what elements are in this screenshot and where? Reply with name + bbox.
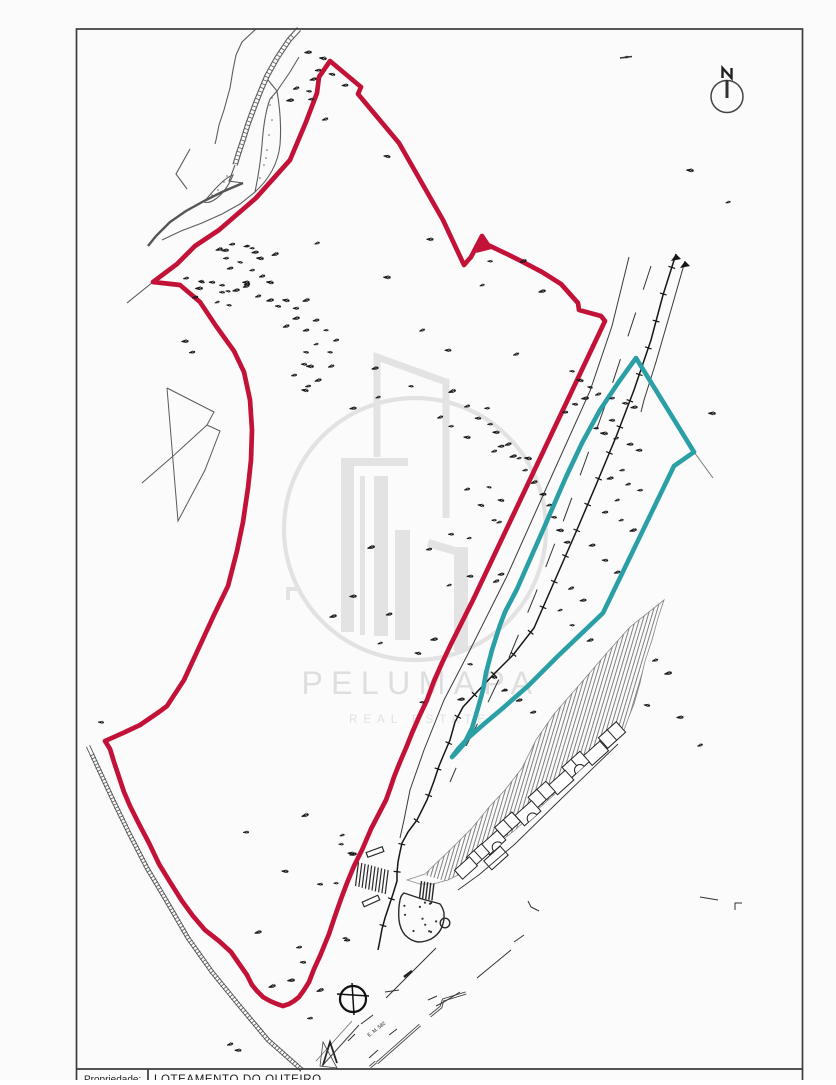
svg-text:LOTEAMENTO DO OUTEIRO: LOTEAMENTO DO OUTEIRO xyxy=(154,1074,322,1080)
svg-text:Propriedade:: Propriedade: xyxy=(84,1075,141,1081)
svg-text:PELUMAPA: PELUMAPA xyxy=(301,665,540,701)
